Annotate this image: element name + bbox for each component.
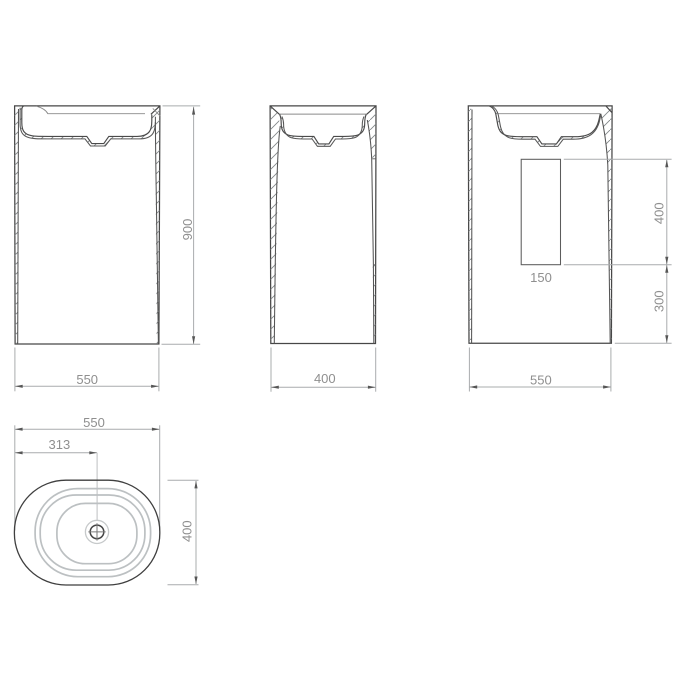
svg-text:550: 550	[530, 372, 552, 387]
svg-text:550: 550	[76, 372, 98, 387]
svg-text:400: 400	[652, 202, 667, 224]
svg-text:300: 300	[652, 290, 667, 312]
svg-text:400: 400	[180, 520, 195, 542]
svg-text:313: 313	[49, 437, 71, 452]
svg-text:900: 900	[180, 219, 195, 241]
svg-text:400: 400	[314, 371, 336, 386]
svg-text:150: 150	[530, 270, 552, 285]
svg-text:550: 550	[83, 415, 105, 430]
